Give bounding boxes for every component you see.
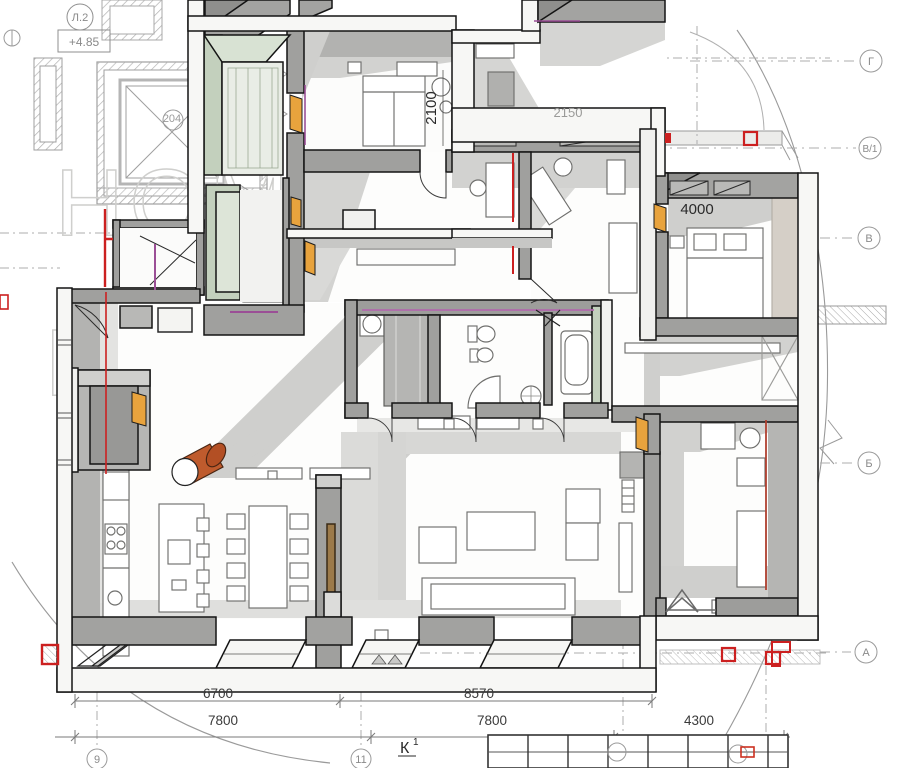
svg-text:1: 1 [413, 737, 419, 748]
svg-text:4300: 4300 [684, 713, 714, 728]
svg-text:2150: 2150 [554, 105, 583, 120]
svg-text:В/1: В/1 [862, 144, 877, 155]
svg-text:6700: 6700 [203, 686, 233, 701]
svg-text:7800: 7800 [208, 713, 238, 728]
svg-text:+4.85: +4.85 [69, 35, 100, 49]
svg-text:9: 9 [94, 754, 100, 766]
svg-text:204: 204 [163, 113, 181, 125]
svg-text:В: В [865, 233, 872, 245]
svg-text:А: А [862, 647, 870, 659]
svg-text:Б: Б [865, 458, 872, 470]
svg-text:Л.2: Л.2 [72, 12, 88, 24]
svg-text:Г: Г [868, 56, 874, 68]
svg-text:11: 11 [355, 754, 366, 766]
svg-text:7800: 7800 [477, 713, 507, 728]
svg-text:2100: 2100 [423, 91, 440, 124]
svg-text:4000: 4000 [680, 201, 713, 218]
svg-text:К: К [400, 740, 410, 757]
svg-text:8570: 8570 [464, 686, 494, 701]
